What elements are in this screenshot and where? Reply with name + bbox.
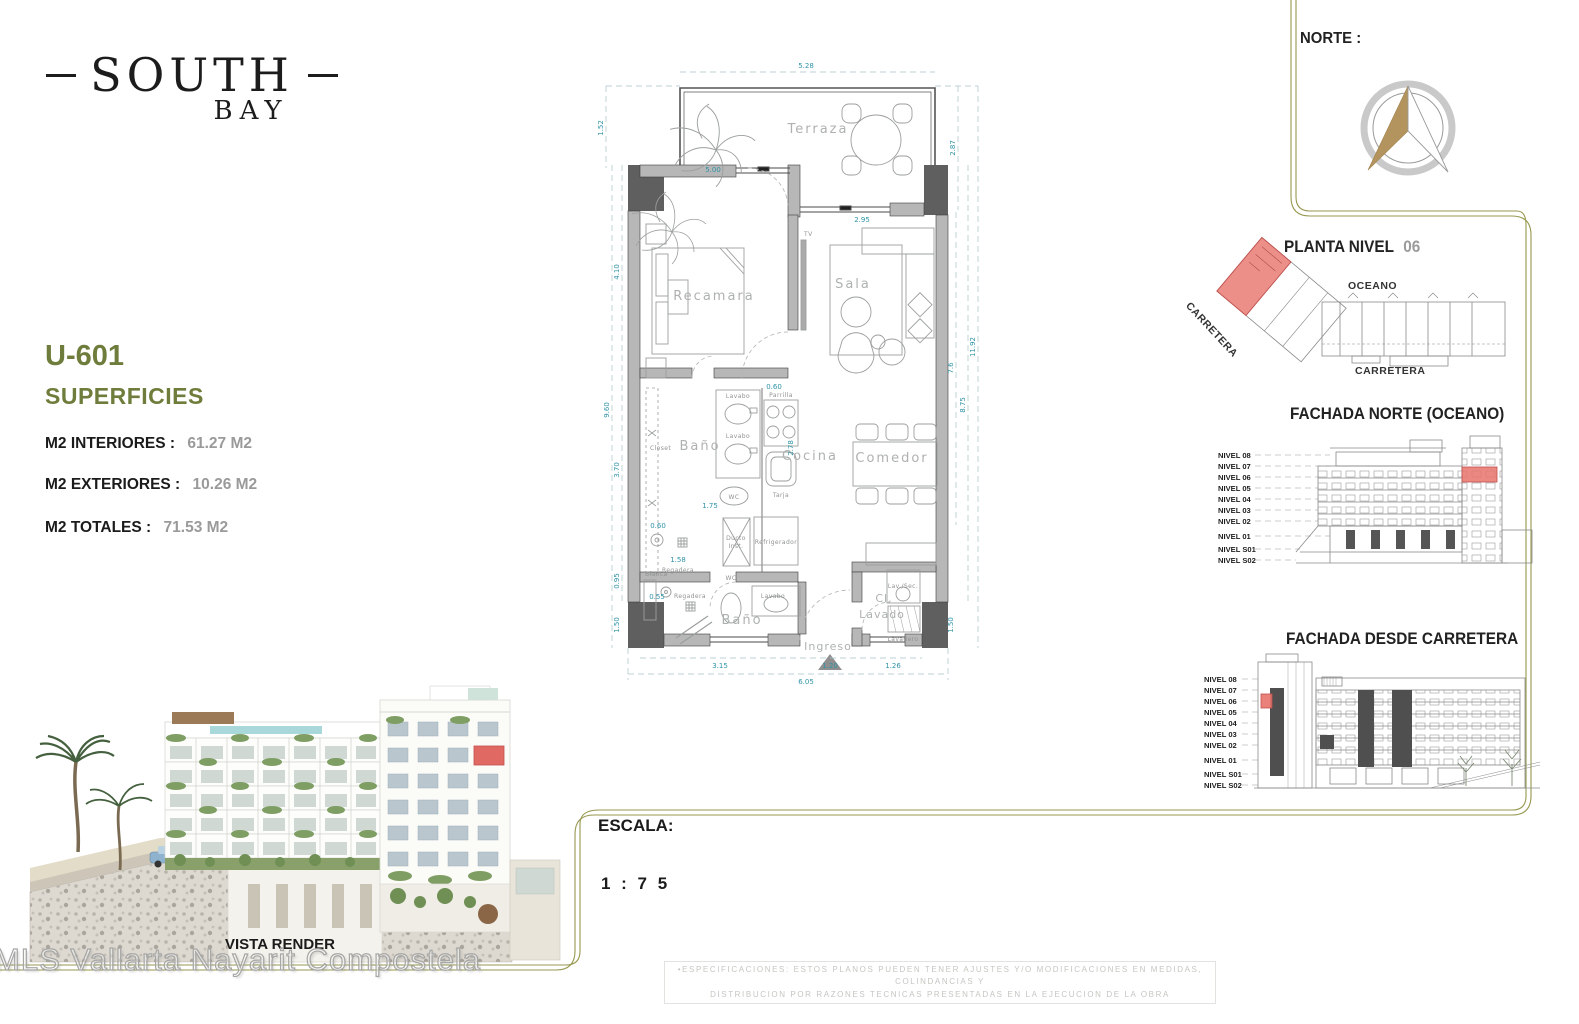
dim-left-4: 1.50 (613, 617, 621, 633)
level-label: NIVEL S02 (1204, 781, 1242, 790)
label-tarja: Tarja (772, 492, 789, 499)
m2-totales-value: 71.53 M2 (164, 519, 229, 536)
planta-nivel-text: PLANTA NIVEL (1284, 238, 1394, 256)
escala-label: ESCALA: (598, 816, 674, 836)
left-wing (165, 712, 380, 870)
unit-highlight-render (474, 746, 504, 765)
comedor-furniture (853, 424, 937, 565)
terraza-furniture (842, 104, 912, 175)
dim-i3: 0.60 (650, 522, 666, 530)
brand-logo: SOUTH BAY (42, 48, 342, 126)
m2-totales-row: M2 TOTALES : 71.53 M2 (45, 519, 228, 537)
fachada-norte-title: FACHADA NORTE (OCEANO) (1290, 405, 1504, 424)
dim-left-3: 0.95 (613, 573, 621, 589)
label-sala: Sala (835, 277, 871, 292)
dim-b2: 1.20 (822, 662, 838, 670)
unit-highlight-plan (1217, 237, 1291, 315)
level-label: NIVEL 01 (1204, 756, 1238, 765)
level-label: NIVEL 02 (1204, 741, 1237, 750)
room-labels: Terraza Recamara Sala Baño Cocina Comedo… (673, 122, 928, 653)
sala-furniture (801, 228, 934, 373)
label-ducto1: Ducto (726, 535, 746, 542)
logo-dash-left (46, 74, 76, 77)
m2-totales-label: M2 TOTALES : (45, 519, 151, 536)
unit-highlight-fachada-carretera (1261, 694, 1272, 708)
level-label: NIVEL 04 (1204, 719, 1238, 728)
sheet-graphics: 5.28 1.52 2.87 9.60 4.10 3.70 0.95 1.50 … (0, 0, 1579, 1024)
m2-interiores-label: M2 INTERIORES : (45, 435, 175, 452)
label-lavsec: Lav./Sec. (888, 583, 918, 590)
label-wc2: WC (726, 575, 737, 582)
label-wc1: WC (729, 494, 740, 501)
fachada-carretera-drawing: NIVEL 08 NIVEL 07 NIVEL 06 NIVEL 05 NIVE… (1204, 654, 1540, 790)
dim-i2: 1.75 (702, 502, 718, 510)
label-recamara: Recamara (673, 289, 755, 304)
label-cl: Cl. (875, 592, 892, 605)
m2-interiores-row: M2 INTERIORES : 61.27 M2 (45, 435, 252, 453)
dim-terraza-r: 2.87 (949, 140, 957, 156)
right-tower (380, 686, 510, 932)
disclaimer-box: •ESPECIFICACIONES: ESTOS PLANOS PUEDEN T… (664, 961, 1216, 1004)
level-label: NIVEL 06 (1204, 697, 1237, 706)
disclaimer-line1: •ESPECIFICACIONES: ESTOS PLANOS PUEDEN T… (669, 964, 1211, 989)
fachada-carretera-levels: NIVEL 08 NIVEL 07 NIVEL 06 NIVEL 05 NIVE… (1204, 675, 1243, 790)
label-lavabo1: Lavabo (726, 393, 750, 400)
watermark: MLS Vallarta Nayarit Compostela (0, 942, 481, 978)
level-label: NIVEL 06 (1218, 473, 1251, 482)
label-tv: TV (803, 231, 813, 238)
oceano-label: OCEANO (1348, 280, 1397, 292)
label-lavado: Lavado (859, 608, 905, 621)
building-render (30, 686, 560, 962)
logo-dash-right (308, 74, 338, 77)
m2-interiores-value: 61.27 M2 (187, 435, 252, 452)
label-terraza: Terraza (787, 122, 849, 137)
dim-i4: 1.58 (670, 556, 686, 564)
logo-word: SOUTH (90, 48, 294, 102)
label-regadera2: Regadera (674, 593, 706, 600)
floorplan: 5.28 1.52 2.87 9.60 4.10 3.70 0.95 1.50 … (597, 62, 978, 686)
dim-b-total: 6.05 (798, 678, 814, 686)
m2-exteriores-value: 10.26 M2 (193, 476, 258, 493)
label-lavabo2: Lavabo (726, 433, 750, 440)
label-cocina: Cocina (782, 449, 838, 464)
level-label: NIVEL 02 (1218, 517, 1251, 526)
planta-nivel-number: 06 (1403, 238, 1420, 256)
unit-highlight-fachada-norte (1462, 467, 1497, 482)
fachada-norte-drawing: NIVEL 08 NIVEL 07 NIVEL 06 NIVEL 05 NIVE… (1218, 436, 1532, 565)
label-parrilla: Parrilla (769, 392, 793, 399)
disclaimer-line2: DISTRIBUCION POR RAZONES TECNICAS PRESEN… (669, 989, 1211, 1001)
level-label: NIVEL 07 (1204, 686, 1237, 695)
carretera-bottom-label: CARRETERA (1355, 365, 1425, 377)
dim-recamara-w: 5.00 (705, 166, 721, 174)
dim-right-2: 8.75 (959, 397, 967, 413)
planta-nivel-title: PLANTA NIVEL06 (1284, 238, 1420, 257)
level-label: NIVEL 01 (1218, 532, 1252, 541)
escala-value: 1 : 7 5 (601, 874, 670, 894)
label-ducto2: Inst. (729, 543, 744, 550)
norte-label: NORTE : (1300, 30, 1361, 48)
label-ingreso: Ingreso (804, 640, 852, 653)
label-refrigerador: Refrigerador (755, 539, 797, 546)
level-label: NIVEL S01 (1204, 770, 1243, 779)
dim-left-total: 9.60 (603, 402, 611, 418)
level-label: NIVEL 03 (1218, 506, 1251, 515)
unit-id: U-601 (45, 340, 124, 373)
label-blanca: Blanca (645, 571, 668, 578)
dim-left-2: 3.70 (613, 462, 621, 478)
dim-left-1: 4.10 (613, 264, 621, 280)
level-label: NIVEL S02 (1218, 556, 1256, 565)
dim-terraza-h: 1.52 (597, 120, 605, 136)
level-label: NIVEL 08 (1218, 451, 1251, 460)
fachada-norte-levels: NIVEL 08 NIVEL 07 NIVEL 06 NIVEL 05 NIVE… (1218, 451, 1257, 565)
m2-exteriores-row: M2 EXTERIORES : 10.26 M2 (45, 476, 257, 494)
dim-b1: 3.15 (712, 662, 728, 670)
plan-sheet: { "brand": {"line1": "SOUTH", "line2": "… (0, 0, 1579, 1024)
level-label: NIVEL 07 (1218, 462, 1251, 471)
level-label: NIVEL 03 (1204, 730, 1237, 739)
label-bano1: Baño (679, 439, 720, 454)
label-comedor: Comedor (855, 451, 928, 466)
label-closet: Closet (650, 445, 671, 452)
label-lavabo3: Lavabo (761, 593, 785, 600)
level-label: NIVEL 05 (1218, 484, 1252, 493)
level-label: NIVEL 08 (1204, 675, 1237, 684)
label-lavadero: Lavadero (888, 636, 919, 643)
dim-b3: 1.26 (885, 662, 901, 670)
dim-top: 5.28 (798, 62, 814, 70)
level-label: NIVEL 04 (1218, 495, 1252, 504)
bath1-fixtures (651, 390, 760, 547)
dim-right-3: 1.50 (947, 617, 955, 633)
dim-sala-w: 2.95 (854, 216, 870, 224)
level-label: NIVEL 05 (1204, 708, 1238, 717)
dim-right-total: 11.92 (969, 337, 977, 357)
level-label: NIVEL S01 (1218, 545, 1257, 554)
dim-i5: 0.55 (649, 593, 665, 601)
fachada-carretera-title: FACHADA DESDE CARRETERA (1286, 630, 1518, 649)
superficies-title: SUPERFICIES (45, 383, 204, 410)
dim-i1: 0.60 (766, 383, 782, 391)
compass-icon (1364, 84, 1452, 172)
label-bano2: Baño (721, 613, 762, 628)
dim-right-1: 7.6 (947, 362, 955, 374)
m2-exteriores-label: M2 EXTERIORES : (45, 476, 180, 493)
